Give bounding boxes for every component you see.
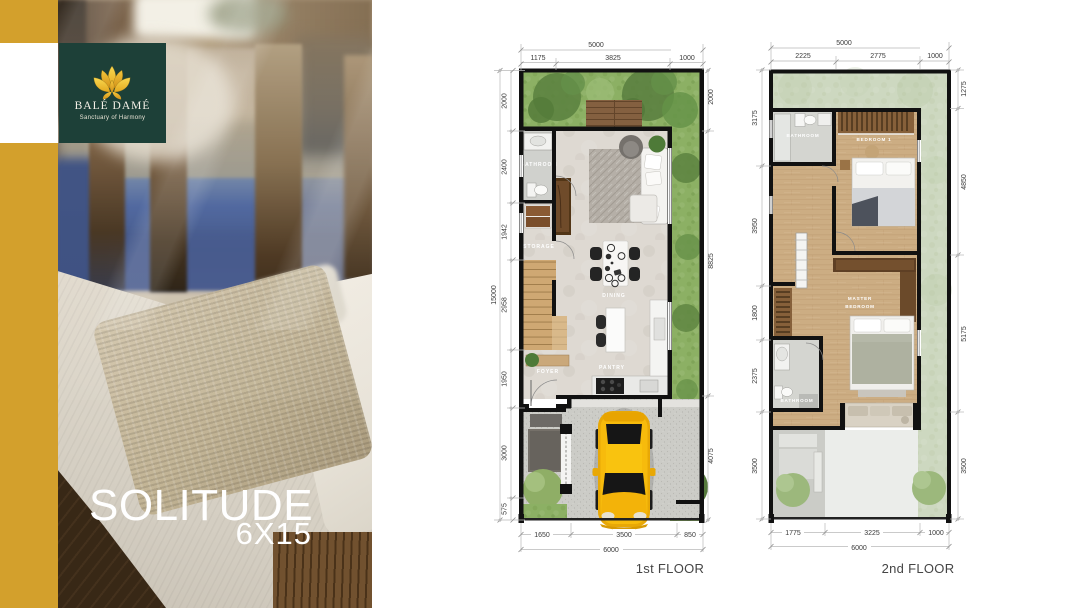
svg-text:4850: 4850	[961, 174, 968, 190]
svg-text:BATHROOM: BATHROOM	[780, 398, 813, 403]
svg-text:3500: 3500	[752, 458, 759, 474]
svg-text:2000: 2000	[502, 93, 509, 109]
svg-text:FOYER: FOYER	[537, 369, 559, 375]
svg-text:1st FLOOR: 1st FLOOR	[636, 561, 704, 576]
svg-text:PANTRY: PANTRY	[599, 365, 625, 371]
svg-text:8825: 8825	[708, 253, 715, 269]
svg-text:STORAGE: STORAGE	[523, 244, 555, 250]
svg-text:MASTER: MASTER	[848, 296, 872, 301]
svg-text:5000: 5000	[588, 42, 604, 49]
svg-text:BEDROOM 1: BEDROOM 1	[856, 137, 891, 142]
svg-text:3000: 3000	[502, 445, 509, 461]
svg-text:2958: 2958	[502, 297, 509, 313]
svg-text:850: 850	[684, 532, 696, 539]
svg-text:BATHROOM: BATHROOM	[520, 162, 557, 168]
svg-text:1950: 1950	[502, 371, 509, 387]
svg-text:5175: 5175	[961, 326, 968, 342]
svg-text:1650: 1650	[534, 532, 550, 539]
svg-text:6000: 6000	[603, 547, 619, 554]
svg-text:1000: 1000	[679, 55, 695, 62]
svg-text:2775: 2775	[870, 53, 886, 60]
svg-text:3825: 3825	[605, 55, 621, 62]
svg-text:15000: 15000	[491, 285, 498, 305]
svg-text:4075: 4075	[708, 448, 715, 464]
svg-text:BEDROOM: BEDROOM	[845, 304, 875, 309]
svg-text:3175: 3175	[752, 110, 759, 126]
svg-text:3500: 3500	[616, 532, 632, 539]
svg-text:3225: 3225	[864, 530, 880, 537]
svg-text:6000: 6000	[851, 545, 867, 552]
svg-text:1175: 1175	[530, 55, 545, 62]
svg-text:3500: 3500	[961, 458, 968, 474]
svg-text:1000: 1000	[927, 53, 943, 60]
svg-text:3950: 3950	[752, 218, 759, 234]
svg-text:2375: 2375	[752, 368, 759, 384]
svg-text:1942: 1942	[502, 224, 509, 240]
svg-text:5000: 5000	[836, 40, 852, 47]
svg-text:1775: 1775	[785, 530, 801, 537]
svg-text:575: 575	[502, 503, 509, 515]
svg-text:2225: 2225	[795, 53, 811, 60]
svg-text:1000: 1000	[928, 530, 944, 537]
svg-text:1800: 1800	[752, 305, 759, 321]
svg-text:1275: 1275	[961, 81, 968, 97]
svg-text:2400: 2400	[502, 159, 509, 175]
svg-text:DINING: DINING	[602, 293, 626, 299]
svg-text:2nd FLOOR: 2nd FLOOR	[882, 561, 955, 576]
svg-text:2000: 2000	[708, 89, 715, 105]
svg-text:BATHROOM: BATHROOM	[786, 133, 819, 138]
